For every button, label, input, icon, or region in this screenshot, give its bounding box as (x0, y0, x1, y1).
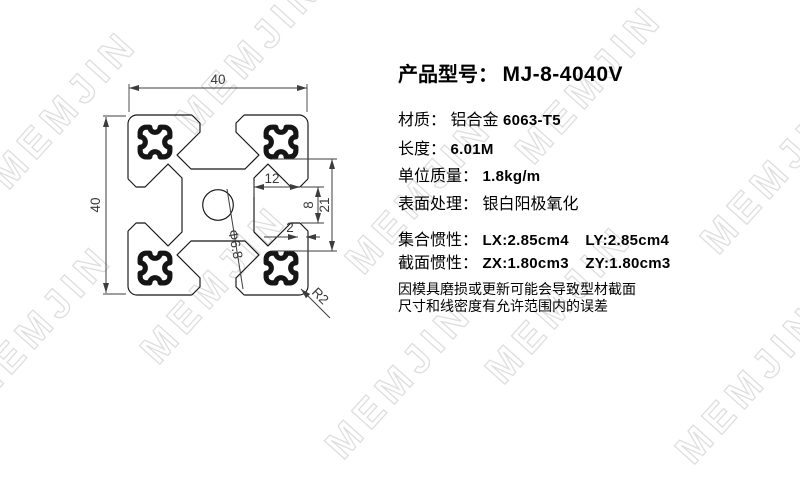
section-modulus-label: 截面惯性： (398, 255, 478, 272)
dim-label-corner-radius: R2 (309, 285, 332, 308)
corner-screw-channel (266, 253, 296, 283)
dim-label-slot-depth: 12 (264, 171, 279, 186)
dim-label-lip-thickness: 2 (286, 220, 294, 235)
moment-inertia-ly: LY:2.85cm4 (585, 232, 669, 249)
dim-label-height: 40 (88, 197, 103, 212)
moment-inertia-lx: LX:2.85cm4 (482, 232, 568, 249)
product-model-row: 产品型号： MJ-8-4040V (398, 58, 623, 87)
unit-mass-label: 单位质量： (398, 168, 478, 185)
material-value-cn: 铝合金 (450, 112, 498, 129)
dim-label-width: 40 (210, 72, 225, 87)
datasheet-page: { "watermark": { "text": "MEMJIN", "colo… (0, 0, 800, 400)
center-hole (203, 190, 234, 221)
corner-screw-channel (140, 127, 170, 157)
tolerance-note-line1: 因模具磨损或更新可能会导致型材截面 (398, 282, 678, 299)
length-label: 长度： (398, 141, 446, 158)
material-label: 材质： (398, 112, 446, 129)
dim-label-slot-opening: 8 (301, 201, 316, 209)
moment-inertia-label: 集合惯性： (398, 232, 478, 249)
surface-treatment-label: 表面处理： (398, 196, 478, 213)
surface-treatment-value: 银白阳极氧化 (482, 196, 578, 213)
surface-treatment-row: 表面处理： 银白阳极氧化 (398, 190, 578, 214)
length-row: 长度： 6.01M (398, 135, 494, 159)
unit-mass-row: 单位质量： 1.8kg/m (398, 162, 540, 186)
section-modulus-zy: ZY:1.80cm3 (585, 255, 670, 272)
product-model-label: 产品型号： (398, 64, 498, 86)
profile-outline (128, 115, 308, 295)
length-value: 6.01M (450, 141, 493, 158)
dim-label-center-hole-dia: Φ6.8 (225, 228, 245, 260)
section-modulus-zx: ZX:1.80cm3 (482, 255, 568, 272)
dim-label-slot-inner-width: 21 (317, 197, 332, 212)
tolerance-note-line2: 尺寸和线密度有允许范围内的误差 (398, 299, 678, 316)
dimension-annotations: 40 40 12 8 21 2 Φ6.8 R2 (88, 72, 337, 318)
moment-inertia-row: 集合惯性： LX:2.85cm4 LY:2.85cm4 (398, 226, 669, 250)
unit-mass-value: 1.8kg/m (482, 168, 540, 185)
corner-screw-channel (266, 127, 296, 157)
spec-panel: 产品型号： MJ-8-4040V 材质： 铝合金 6063-T5 长度： 6.0… (398, 0, 798, 400)
corner-screw-channel (140, 253, 170, 283)
material-row: 材质： 铝合金 6063-T5 (398, 106, 561, 130)
section-modulus-row: 截面惯性： ZX:1.80cm3 ZY:1.80cm3 (398, 249, 671, 273)
material-value: 6063-T5 (503, 112, 561, 129)
product-model-value: MJ-8-4040V (502, 63, 623, 86)
tolerance-note: 因模具磨损或更新可能会导致型材截面 尺寸和线密度有允许范围内的误差 (398, 282, 678, 316)
profile-cross-section-drawing: 40 40 12 8 21 2 Φ6.8 R2 (0, 0, 390, 400)
